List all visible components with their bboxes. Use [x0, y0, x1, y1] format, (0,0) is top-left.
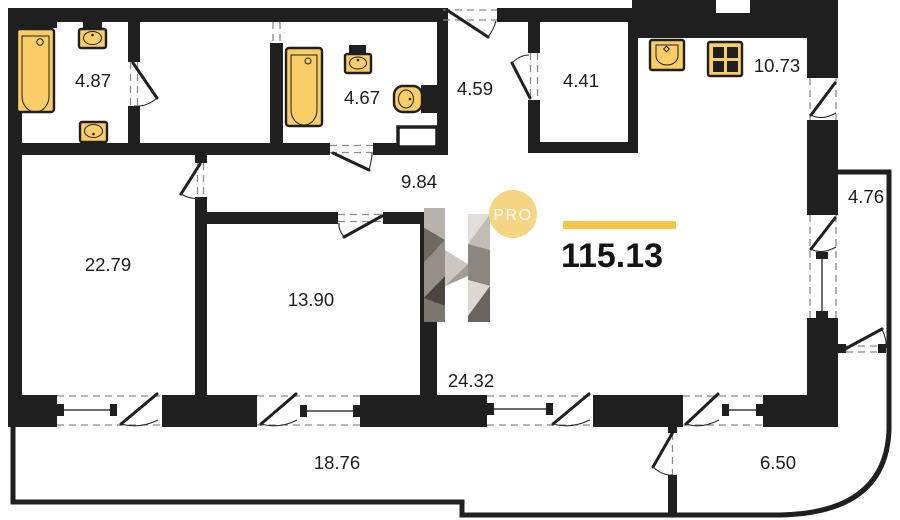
- room-area-label: 18.76: [314, 452, 360, 473]
- room-area-label: 10.73: [754, 55, 800, 76]
- room-area-label: 4.67: [344, 87, 380, 108]
- toilet-icon: [394, 85, 437, 113]
- window-icon: [487, 403, 553, 415]
- door-swing-icon: [653, 432, 673, 467]
- casement-window-icon: [811, 83, 836, 118]
- casement-window-icon: [553, 394, 590, 426]
- bathtub-icon: [17, 29, 54, 112]
- brand: PRO 115.13: [424, 190, 676, 322]
- pro-badge-label: PRO: [493, 207, 532, 224]
- kitchen-sink-icon: [650, 40, 684, 70]
- accent-underline: [563, 221, 676, 229]
- sink-icon: [79, 18, 106, 48]
- door-swing-icon: [181, 163, 204, 199]
- floor-plan: PRO 115.13 4.87 4.67 4.59 4.41 10.73 9.8…: [0, 0, 900, 520]
- door-swing-icon: [338, 215, 383, 238]
- balcony-outline: [13, 172, 889, 517]
- sink-icon: [80, 122, 107, 142]
- casement-window-icon: [261, 394, 297, 426]
- door-swing-icon: [330, 146, 373, 171]
- door-opening: [273, 22, 280, 43]
- casement-window-icon: [121, 394, 158, 426]
- stove-icon: [708, 42, 742, 76]
- h-logo: [424, 208, 490, 322]
- window-icon: [816, 252, 828, 318]
- window-icon: [722, 404, 763, 416]
- room-area-label: 4.59: [457, 78, 493, 99]
- room-area-label: 4.41: [563, 70, 599, 91]
- floor-plan-drawing: PRO 115.13 4.87 4.67 4.59 4.41 10.73 9.8…: [0, 0, 900, 520]
- room-area-label: 9.84: [401, 171, 437, 192]
- room-area-label: 4.87: [75, 70, 111, 91]
- window-icon: [300, 405, 360, 417]
- room-area-label: 22.79: [85, 254, 131, 275]
- casement-window-icon: [811, 218, 836, 252]
- total-area-label: 115.13: [561, 237, 663, 275]
- room-area-label: 13.90: [288, 289, 334, 310]
- bathtub-icon: [286, 48, 322, 126]
- room-area-label: 4.76: [848, 186, 884, 207]
- room-area-label: 24.32: [448, 370, 494, 391]
- sink-icon: [345, 45, 371, 73]
- entrance-door-icon: [443, 10, 497, 37]
- door-swing-icon: [512, 53, 538, 100]
- doors: [131, 10, 538, 237]
- pro-badge: PRO: [489, 190, 537, 238]
- casement-window-icon: [686, 394, 719, 426]
- room-area-label: 6.50: [760, 452, 796, 473]
- window-icon: [57, 404, 117, 416]
- door-swing-icon: [131, 62, 158, 106]
- shaft-icon: [398, 127, 437, 147]
